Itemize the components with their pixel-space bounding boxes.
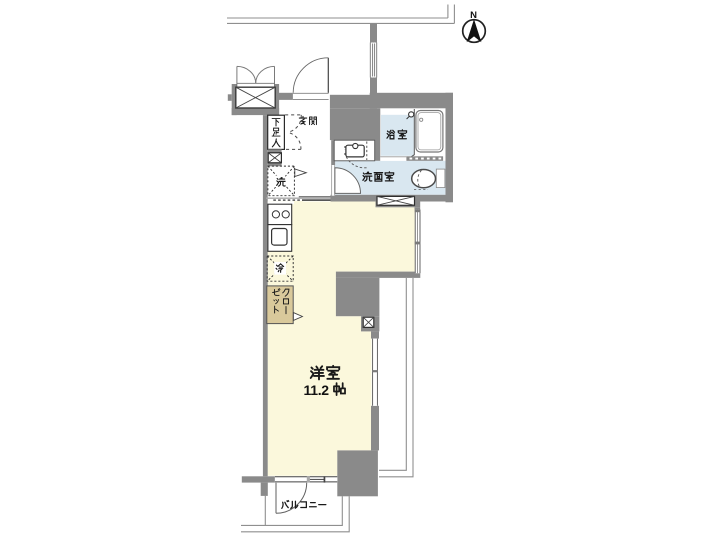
- svg-text:11.2: 11.2: [304, 382, 330, 398]
- svg-text:N: N: [470, 10, 477, 21]
